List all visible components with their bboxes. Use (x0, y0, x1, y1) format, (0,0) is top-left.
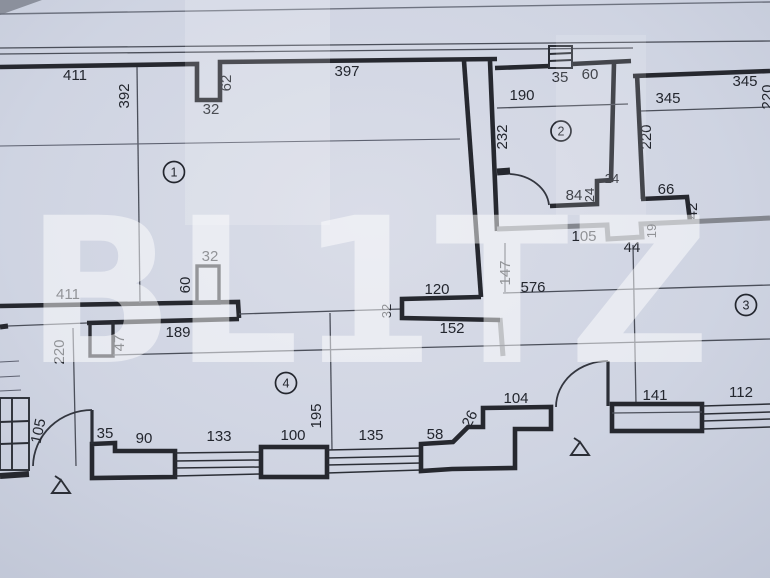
dim-100: 100 (280, 427, 305, 444)
dim-190: 190 (509, 87, 534, 104)
room-3-number: 3 (743, 299, 750, 313)
dim-133: 133 (206, 428, 231, 445)
dim-58: 58 (427, 426, 444, 443)
dim-411-top: 411 (63, 67, 87, 84)
dim-edge-clipped: 220 (759, 84, 770, 109)
dim-397: 397 (334, 63, 359, 80)
dim-232: 232 (494, 124, 511, 149)
floor-plan-svg: 411 392 62 32 397 35 60 190 232 84 24 24… (0, 0, 770, 578)
dim-135: 135 (358, 427, 383, 444)
watermark-text: BL1TZ (26, 174, 711, 410)
dim-345-inner: 345 (655, 90, 680, 107)
dim-90: 90 (136, 430, 153, 447)
room2-top-wall-left (495, 66, 550, 68)
room2-door-jamb (497, 171, 510, 172)
dim-112: 112 (729, 384, 753, 401)
floor-plan-photo: 411 392 62 32 397 35 60 190 232 84 24 24… (0, 0, 770, 578)
dim-35-bottom: 35 (97, 425, 114, 442)
dim-345-top: 345 (732, 73, 757, 90)
staircase-base-wall (0, 474, 29, 476)
dim-392: 392 (116, 83, 133, 108)
corridor-lower-wall-stub (0, 326, 8, 327)
